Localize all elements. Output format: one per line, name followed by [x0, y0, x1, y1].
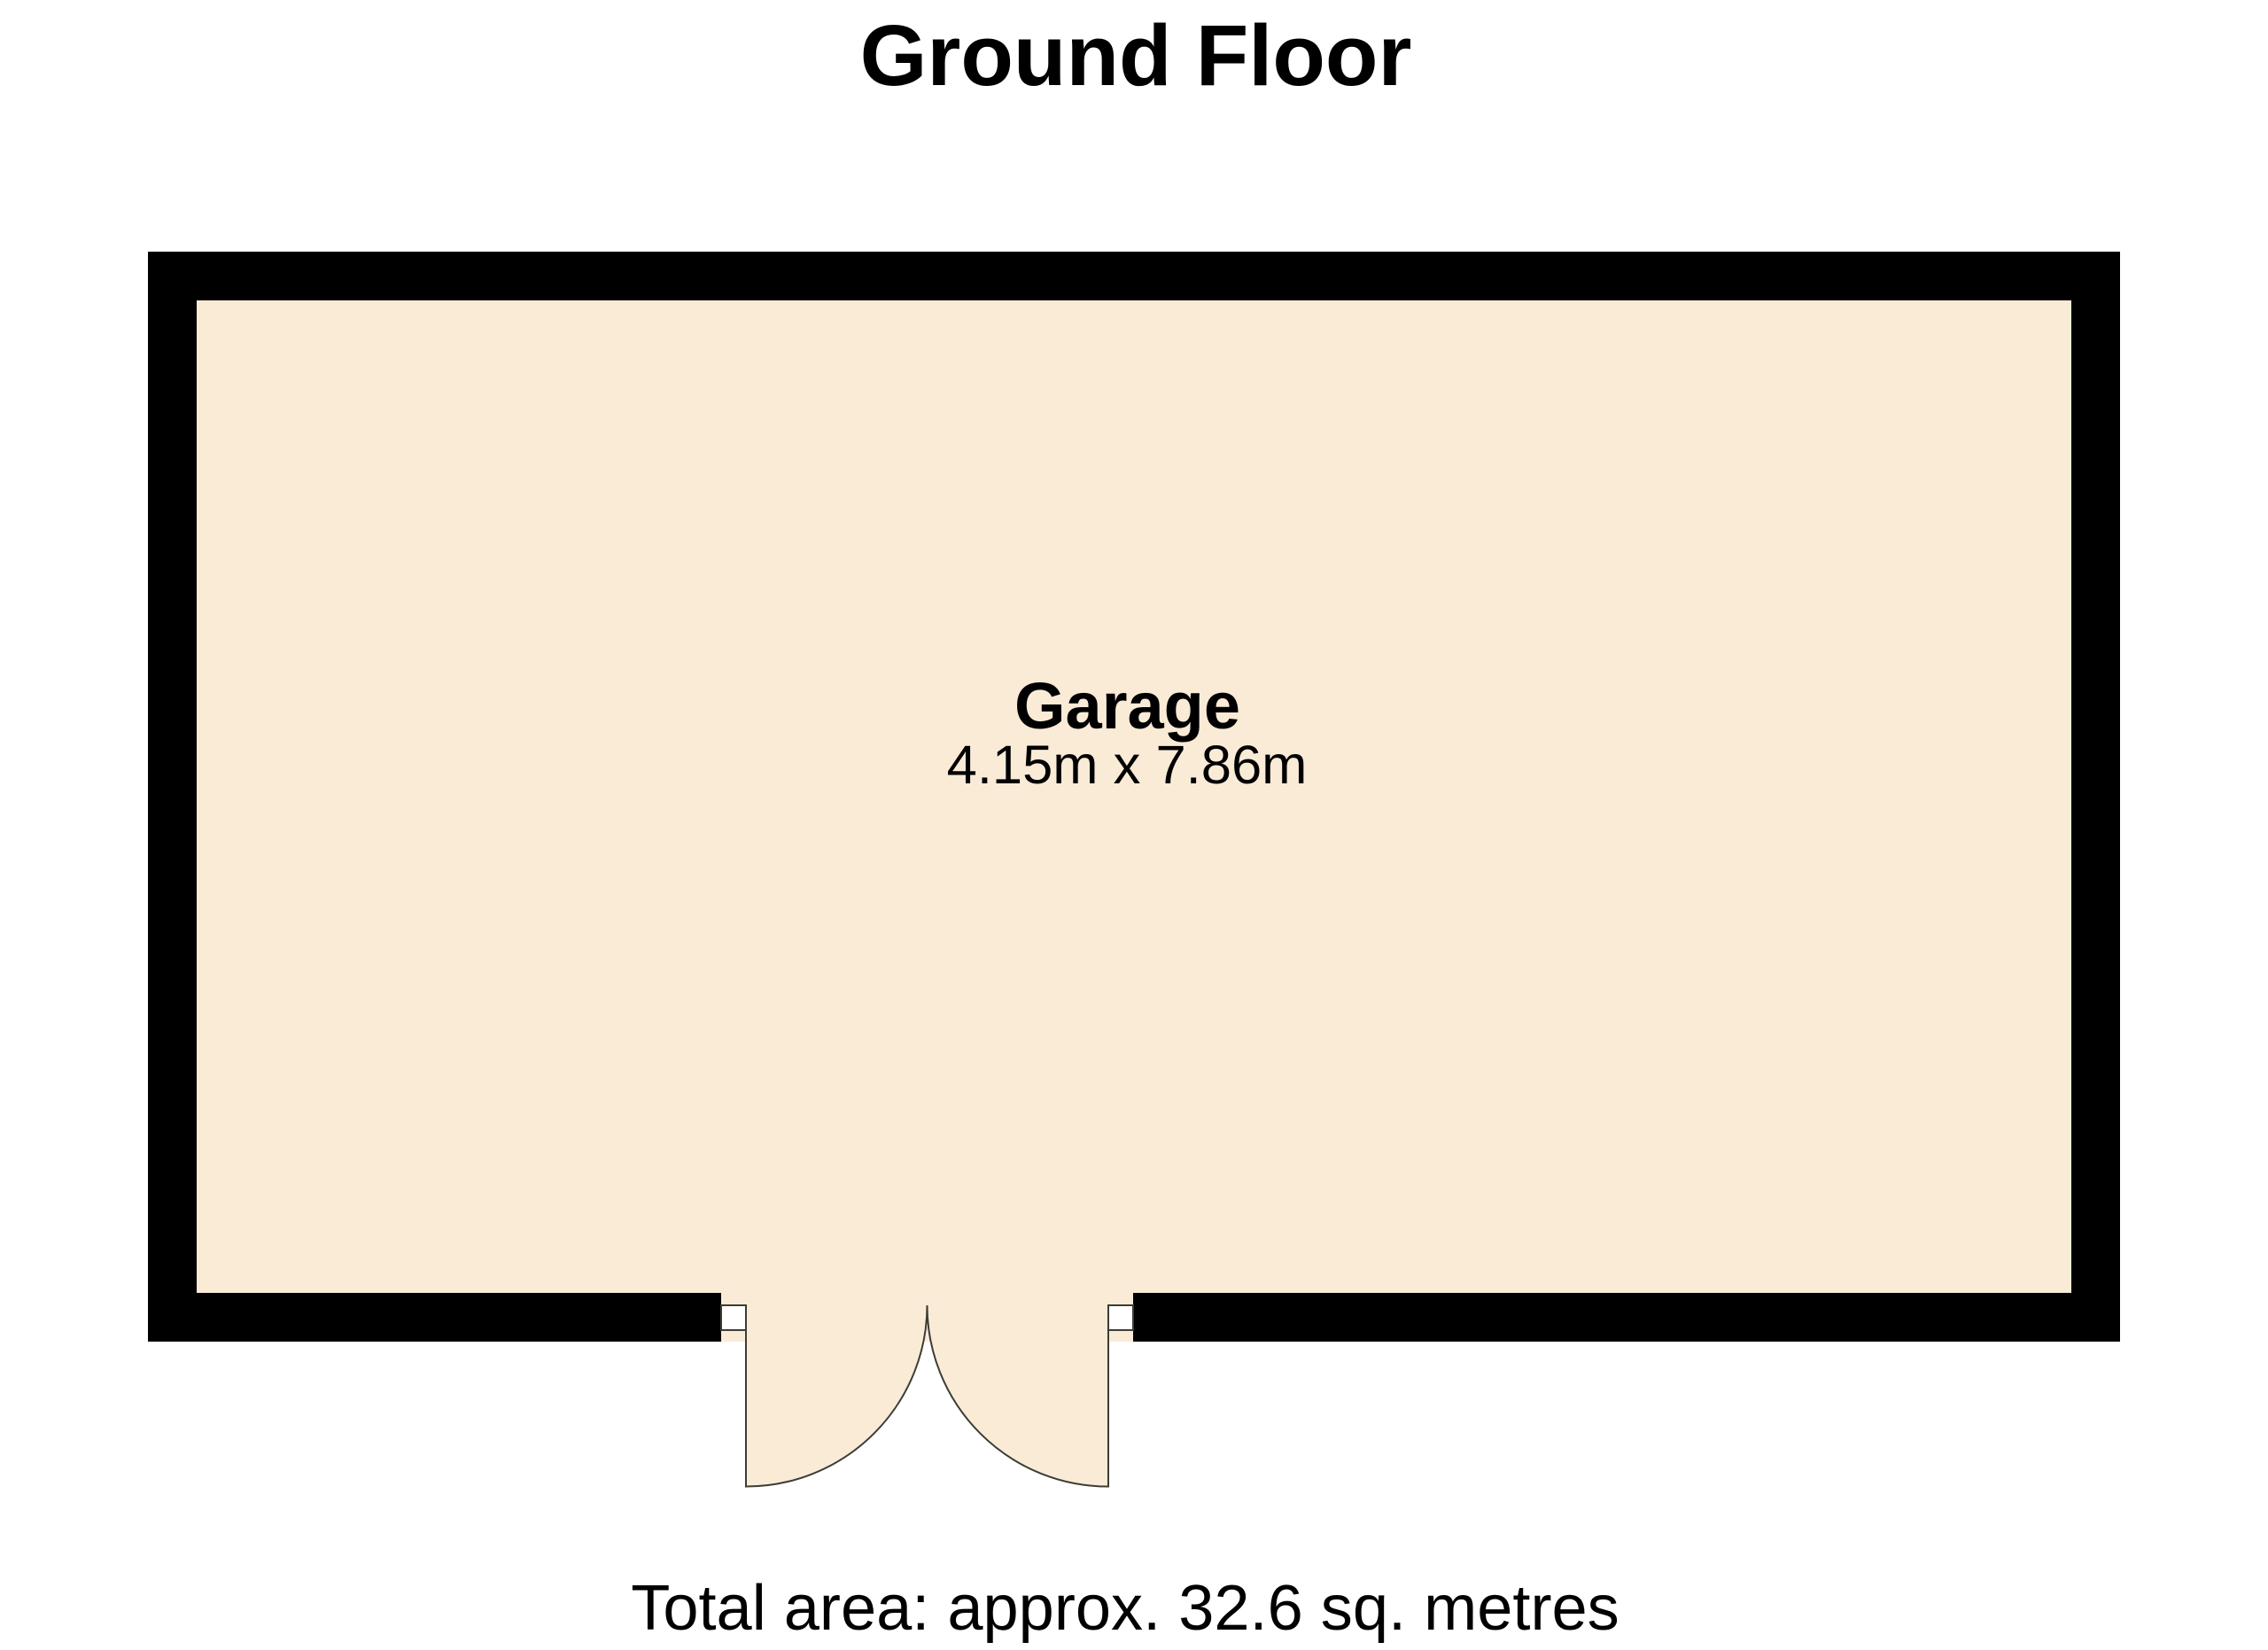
- svg-text:Garage: Garage: [1014, 669, 1240, 743]
- svg-text:Ground Floor: Ground Floor: [860, 7, 1412, 104]
- svg-text:4.15m x 7.86m: 4.15m x 7.86m: [947, 735, 1308, 796]
- svg-text:Total area: approx. 32.6 sq. m: Total area: approx. 32.6 sq. metres: [631, 1573, 1619, 1644]
